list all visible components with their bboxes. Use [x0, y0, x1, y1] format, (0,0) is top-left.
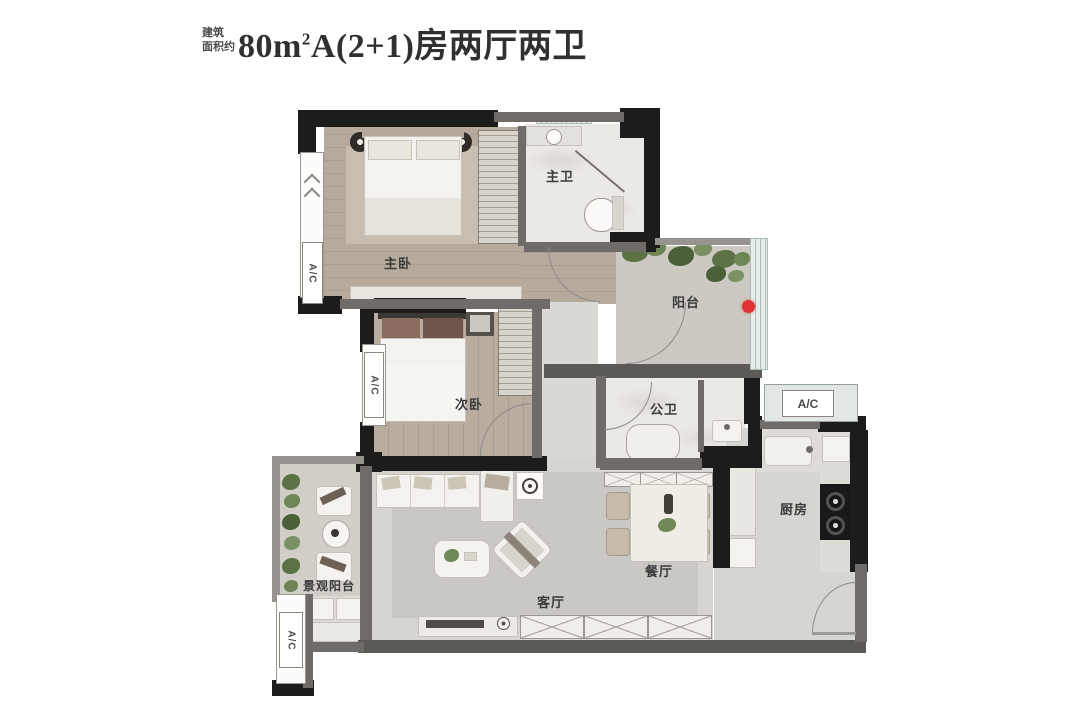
second-bed-blanket	[381, 364, 465, 420]
label-living-room: 客厅	[537, 596, 565, 609]
sofa-pillow	[413, 476, 432, 490]
wall	[272, 460, 280, 602]
title-prefix-line2: 面积约	[202, 41, 235, 55]
wall	[298, 110, 316, 154]
master-bed-blanket	[365, 198, 461, 235]
title-suffix: A(2+1)房两厅两卫	[311, 28, 587, 65]
red-dot-marker-icon	[742, 300, 755, 313]
page-title: 建筑 面积约 80m2A(2+1)房两厅两卫	[202, 18, 587, 67]
balcony-table-center	[331, 529, 339, 537]
label-kitchen: 厨房	[780, 503, 808, 516]
ac-unit-second: A/C	[364, 352, 384, 418]
wall	[532, 306, 542, 458]
master-wardrobe	[478, 130, 522, 244]
wall	[494, 112, 624, 122]
sofa-pillow	[381, 476, 400, 490]
wall	[367, 456, 547, 471]
second-wardrobe	[498, 308, 536, 396]
wall	[340, 299, 550, 309]
faucet	[806, 446, 813, 453]
floor-lamp	[522, 478, 538, 494]
title-area: 80m	[238, 28, 302, 65]
stove-burner	[826, 516, 845, 535]
wall	[306, 642, 364, 652]
title-prefix: 建筑 面积约	[202, 27, 235, 55]
wall	[360, 466, 372, 644]
title-area-sup: 2	[302, 30, 311, 49]
floorplan-page: 建筑 面积约 80m2A(2+1)房两厅两卫	[0, 0, 1080, 704]
label-master-bedroom: 主卧	[384, 257, 412, 270]
stove-burner	[826, 492, 845, 511]
sink	[546, 129, 562, 145]
entry-door-leaf	[812, 632, 856, 635]
utility-cabinet	[308, 622, 362, 642]
bathtub	[626, 424, 680, 462]
label-view-balcony: 景观阳台	[303, 580, 355, 592]
ac-unit-balcony: A/C	[279, 612, 303, 668]
sofa-seam	[444, 475, 445, 507]
toilet-tank	[612, 196, 624, 230]
ac-label: A/C	[369, 375, 380, 395]
pillow	[382, 318, 420, 338]
vase	[664, 494, 673, 514]
storage-cabinet	[648, 615, 712, 639]
coffee-table	[434, 540, 490, 578]
label-public-bathroom: 公卫	[650, 403, 678, 416]
wall	[644, 108, 660, 248]
wall-table-top	[470, 315, 490, 332]
sofa-seam	[410, 475, 411, 507]
utility-cabinet	[336, 598, 362, 620]
storage-cabinet	[584, 615, 648, 639]
pillow	[368, 140, 412, 160]
label-master-bathroom: 主卫	[546, 170, 574, 183]
wall	[272, 456, 364, 464]
book	[464, 552, 477, 561]
wall	[600, 458, 702, 470]
wall	[544, 364, 762, 378]
fridge	[728, 538, 756, 568]
title-prefix-line1: 建筑	[202, 27, 235, 41]
kitchen-cabinet	[822, 436, 850, 462]
dining-chair	[606, 528, 630, 556]
wall	[698, 380, 704, 452]
wall	[655, 238, 753, 245]
pillow	[416, 140, 460, 160]
ac-unit-master: A/C	[302, 242, 323, 304]
pillow	[423, 318, 463, 338]
ac-label: A/C	[798, 397, 819, 411]
kitchen-sink	[764, 436, 812, 466]
wall	[518, 126, 526, 246]
title-main: 80m2A(2+1)房两厅两卫	[238, 18, 587, 67]
ac-unit-kitchen: A/C	[782, 390, 834, 417]
dining-chair	[606, 492, 630, 520]
kitchen-counter-left	[728, 466, 756, 536]
label-second-bedroom: 次卧	[455, 398, 483, 411]
storage-cabinet	[520, 615, 584, 639]
wall	[358, 640, 866, 653]
tv	[426, 620, 484, 628]
label-dining-room: 餐厅	[645, 565, 673, 578]
sofa-pillow	[448, 476, 467, 490]
label-balcony: 阳台	[672, 296, 700, 309]
wall	[850, 430, 868, 572]
ac-label: A/C	[307, 263, 318, 283]
wall	[713, 464, 730, 568]
ac-label: A/C	[285, 630, 296, 650]
wall	[855, 564, 867, 642]
wall	[298, 110, 498, 127]
speaker	[497, 617, 510, 630]
corridor-floor	[542, 302, 598, 462]
faucet	[724, 424, 730, 430]
